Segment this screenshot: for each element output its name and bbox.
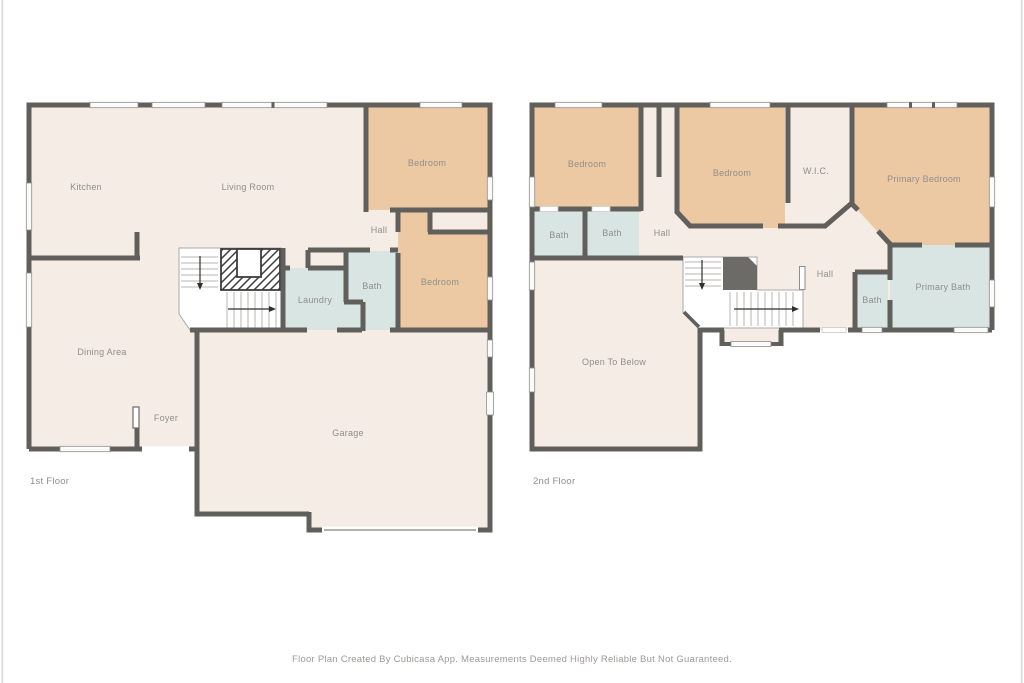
f1-stairwell-opening xyxy=(237,249,261,277)
room-f1-bedroom-closet xyxy=(431,210,487,232)
room-f2-bedroom-mid xyxy=(677,105,785,228)
window-mullion xyxy=(932,102,935,107)
label-living-room: Living Room xyxy=(222,182,275,192)
left-page-border xyxy=(2,0,4,683)
window xyxy=(487,392,494,415)
window xyxy=(487,340,492,357)
window xyxy=(529,368,534,392)
label-hall-f1: Hall xyxy=(371,225,388,235)
window xyxy=(954,327,988,332)
label-wic: W.I.C. xyxy=(803,166,829,176)
window xyxy=(862,327,882,332)
label-hall-upper-f2: Hall xyxy=(654,228,671,238)
label-bath-f1: Bath xyxy=(362,281,382,291)
window xyxy=(555,102,602,107)
window xyxy=(487,277,492,300)
window xyxy=(487,177,492,200)
label-bedroom-mid-f2: Bedroom xyxy=(713,168,751,178)
window xyxy=(26,273,31,327)
window xyxy=(90,102,138,107)
window xyxy=(529,262,534,290)
window-mullion xyxy=(272,102,275,107)
label-laundry: Laundry xyxy=(298,295,333,305)
floor1-title: 1st Floor xyxy=(30,476,69,487)
f2-stairwell-core xyxy=(723,257,757,290)
door-threshold xyxy=(592,206,610,211)
window xyxy=(420,102,462,107)
label-garage: Garage xyxy=(332,428,364,438)
label-bath-left-f2: Bath xyxy=(549,230,569,240)
window xyxy=(989,280,994,307)
f2-stair-railing xyxy=(800,267,806,290)
window xyxy=(887,102,957,107)
floor1-plan: Kitchen Living Room Bedroom Hall Bath Be… xyxy=(26,102,493,533)
f1-front-door-leaf xyxy=(133,407,139,428)
floor2-title: 2nd Floor xyxy=(533,476,575,487)
f1-garage-door xyxy=(322,527,478,534)
floor2-plan: Bedroom Bedroom W.I.C. Primary Bedroom B… xyxy=(529,102,994,487)
label-open-to-below: Open To Below xyxy=(582,357,646,367)
label-hall-lower-f2: Hall xyxy=(817,269,834,279)
window xyxy=(710,102,770,107)
label-kitchen: Kitchen xyxy=(70,182,102,192)
window xyxy=(989,177,994,207)
f1-front-door-opening xyxy=(142,446,189,451)
window xyxy=(60,446,110,451)
label-bedroom-right: Bedroom xyxy=(421,277,459,287)
label-bath-small-f2: Bath xyxy=(862,295,882,305)
label-foyer: Foyer xyxy=(154,413,178,423)
right-page-border xyxy=(1021,0,1023,683)
door-threshold xyxy=(540,206,558,211)
window-mullion xyxy=(909,102,912,107)
floor-plan-canvas: Kitchen Living Room Bedroom Hall Bath Be… xyxy=(0,0,1024,683)
label-bedroom-left-f2: Bedroom xyxy=(568,159,606,169)
footer-disclaimer: Floor Plan Created By Cubicasa App. Meas… xyxy=(292,654,732,665)
window xyxy=(26,183,31,230)
label-primary-bedroom: Primary Bedroom xyxy=(887,174,961,184)
label-bedroom-top: Bedroom xyxy=(408,158,446,168)
window xyxy=(731,341,771,346)
label-dining-area: Dining Area xyxy=(77,347,126,357)
window xyxy=(529,177,534,207)
room-f2-bedroom-left xyxy=(534,105,641,210)
window xyxy=(152,102,205,107)
floor-plan-page: Kitchen Living Room Bedroom Hall Bath Be… xyxy=(0,0,1024,683)
label-primary-bath: Primary Bath xyxy=(915,282,970,292)
floor1-stairs xyxy=(179,248,281,330)
door-threshold xyxy=(822,327,846,332)
label-bath-mid-f2: Bath xyxy=(602,228,622,238)
